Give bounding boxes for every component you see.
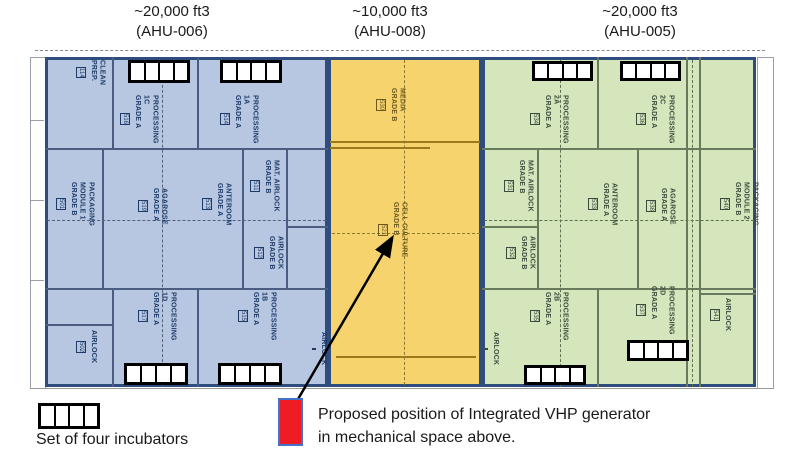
incubator-cell — [672, 343, 687, 358]
wall — [637, 148, 639, 288]
room-label: PACKAGING MODULE 1 GRADE B — [68, 182, 94, 226]
incubator-cell — [83, 406, 98, 426]
room-label: ANTEROOM GRADE A — [214, 183, 232, 225]
room-number: 531 — [504, 180, 514, 192]
room-number: 537 — [636, 304, 646, 316]
plan-left-margin — [30, 57, 46, 389]
incubator-cell — [234, 366, 249, 382]
room-label: AGAROSE GRADE A — [150, 188, 168, 225]
incubator-set-icon — [220, 60, 282, 83]
room-processing-2b: PROCESSING 2B GRADE A 535 — [530, 292, 568, 341]
room-number: 514 — [220, 113, 230, 125]
incubator-legend-label: Set of four incubators — [36, 428, 188, 451]
incubator-cell — [158, 63, 173, 80]
room-label: PROCESSING 2D GRADE A — [648, 286, 674, 335]
incubator-cell — [562, 64, 576, 78]
incubator-set-legend-icon — [38, 403, 100, 429]
room-number: 501 — [56, 198, 66, 210]
wall — [597, 288, 599, 387]
room-number: 502 — [76, 341, 86, 353]
plan-top-wall — [35, 50, 765, 51]
room-number: 530 — [376, 99, 386, 111]
wall — [686, 57, 688, 387]
ahu-unit: (AHU-005) — [555, 22, 725, 42]
room-media: MEDIA GRADE B 530 — [376, 88, 406, 122]
room-number: 511 — [250, 180, 260, 192]
wall — [330, 147, 430, 149]
wall — [242, 148, 244, 288]
wall — [482, 148, 756, 150]
incubator-cell — [68, 406, 83, 426]
wall — [537, 148, 539, 288]
room-number: 538 — [646, 200, 656, 212]
wall — [597, 57, 599, 148]
incubator-cell — [540, 368, 555, 382]
room-label: PROCESSING 1D GRADE A — [150, 292, 176, 341]
room-label: PROCESSING 1C GRADE A — [132, 95, 158, 144]
incubator-cell — [131, 63, 144, 80]
wall — [699, 57, 701, 387]
wall — [699, 293, 756, 295]
incubator-cell — [527, 368, 540, 382]
room-cell-culture: CELL CULTURE GRADE B 521 — [378, 202, 408, 257]
room-number: 517 — [138, 310, 148, 322]
vhp-legend-label: Proposed position of Integrated VHP gene… — [318, 403, 650, 449]
room-airlock-green-corridor: AIRLOCK — [484, 332, 499, 365]
incubator-cell — [41, 406, 54, 426]
room-mat-airlock-1: MAT. AIRLOCK GRADE B 511 — [250, 160, 280, 212]
incubator-cell — [236, 63, 251, 80]
incubator-cell — [265, 63, 280, 80]
wall — [112, 288, 114, 387]
ahu-unit: (AHU-008) — [305, 22, 475, 42]
room-number: 519 — [138, 200, 148, 212]
room-label: AIRLOCK — [722, 298, 731, 331]
room-anteroom-2: ANTEROOM GRADE A 533 — [588, 183, 618, 225]
wall — [286, 148, 288, 288]
room-number: 533 — [588, 198, 598, 210]
incubator-cell — [635, 64, 649, 78]
room-mat-airlock-2: MAT. AIRLOCK GRADE B 531 — [504, 160, 534, 212]
room-processing-1a: PROCESSING 1A GRADE A 514 — [220, 95, 258, 144]
room-label: PROCESSING 2B GRADE A — [542, 292, 568, 341]
incubator-cell — [576, 64, 590, 78]
incubator-cell — [250, 63, 265, 80]
wall — [286, 226, 328, 228]
room-label: AIRLOCK — [490, 332, 499, 365]
room-airlock-gradeb-1: AIRLOCK GRADE B 512 — [254, 236, 284, 270]
incubator-cell — [264, 366, 279, 382]
incubator-cell — [650, 64, 664, 78]
room-number — [484, 348, 488, 350]
ahu-volume: ~20,000 ft3 — [87, 2, 257, 22]
incubator-cell — [249, 366, 264, 382]
wall — [330, 141, 480, 143]
wall — [30, 280, 44, 281]
ahu-005-label: ~20,000 ft3 (AHU-005) — [555, 2, 725, 41]
room-agarose-2: AGAROSE GRADE A 538 — [646, 188, 676, 225]
room-airlock-541: AIRLOCK 541 — [710, 298, 731, 331]
wall — [102, 148, 104, 288]
room-processing-2a: PROCESSING 2A GRADE A 534 — [530, 95, 568, 144]
room-label: MAT. AIRLOCK GRADE B — [262, 160, 280, 212]
wall — [197, 57, 199, 148]
room-number: 534 — [530, 113, 540, 125]
room-number: 541 — [710, 309, 720, 321]
floor-plan-figure: ~20,000 ft3 (AHU-006) ~10,000 ft3 (AHU-0… — [0, 0, 800, 460]
incubator-set-icon — [532, 61, 593, 81]
room-airlock-502: AIRLOCK 502 — [76, 330, 97, 363]
room-label: MEDIA GRADE B — [388, 88, 406, 122]
room-label: PROCESSING 2A GRADE A — [542, 95, 568, 144]
room-processing-1d: PROCESSING 1D GRADE A 517 — [138, 292, 176, 341]
ahu-008-label: ~10,000 ft3 (AHU-008) — [305, 2, 475, 41]
room-label: AIRLOCK — [318, 332, 327, 365]
incubator-cell — [144, 63, 159, 80]
room-label: AIRLOCK GRADE B — [518, 236, 536, 270]
incubator-set-icon — [627, 340, 689, 361]
plan-right-margin — [757, 57, 774, 389]
wall — [482, 226, 537, 228]
incubator-cell — [643, 343, 658, 358]
room-label: AGAROSE GRADE A — [658, 188, 676, 225]
plan-bottom-wall — [30, 388, 772, 389]
room-label: CELL CULTURE GRADE B — [390, 202, 408, 257]
centerline — [484, 220, 754, 221]
incubator-cell — [657, 343, 672, 358]
room-number: 535 — [530, 310, 540, 322]
room-number: 513 — [202, 198, 212, 210]
wall — [45, 288, 328, 290]
incubator-set-icon — [218, 363, 282, 385]
room-label: PROCESSING 1B GRADE A — [250, 292, 276, 341]
room-number: 114 — [76, 67, 86, 79]
incubator-cell — [630, 343, 643, 358]
room-label: MAT. AIRLOCK GRADE B — [516, 160, 534, 212]
incubator-cell — [170, 366, 185, 382]
room-number: 536 — [636, 113, 646, 125]
ahu-006-label: ~20,000 ft3 (AHU-006) — [87, 2, 257, 41]
room-airlock-gradeb-2: AIRLOCK GRADE B 532 — [506, 236, 536, 270]
wall — [45, 324, 112, 326]
room-processing-2d: PROCESSING 2D GRADE A 537 — [636, 286, 674, 335]
room-anteroom-1: ANTEROOM GRADE A 513 — [202, 183, 232, 225]
incubator-cell — [223, 63, 236, 80]
incubator-cell — [54, 406, 69, 426]
incubator-set-icon — [128, 60, 190, 83]
incubator-set-icon — [620, 61, 681, 81]
room-number: 521 — [378, 224, 388, 236]
room-label: CLEAN PREP. — [88, 60, 106, 85]
room-label: PROCESSING 2C GRADE A — [648, 95, 674, 144]
zone-ahu-005 — [482, 57, 756, 387]
incubator-cell — [140, 366, 155, 382]
room-label: AIRLOCK GRADE B — [266, 236, 284, 270]
wall — [30, 200, 44, 201]
incubator-cell — [554, 368, 569, 382]
incubator-cell — [547, 64, 561, 78]
room-number — [312, 348, 316, 350]
incubator-cell — [535, 64, 547, 78]
room-processing-1c: PROCESSING 1C GRADE A 516 — [120, 95, 158, 144]
room-number: 515 — [238, 310, 248, 322]
incubator-set-icon — [524, 365, 586, 385]
ahu-volume: ~20,000 ft3 — [555, 2, 725, 22]
room-processing-2c: PROCESSING 2C GRADE A 536 — [636, 95, 674, 144]
room-clean-prep: CLEAN PREP. 114 — [76, 60, 106, 85]
room-label: PROCESSING 1A GRADE A — [232, 95, 258, 144]
room-number: 532 — [506, 247, 516, 259]
room-number: 512 — [254, 247, 264, 259]
wall — [197, 288, 199, 387]
room-processing-1b: PROCESSING 1B GRADE A 515 — [238, 292, 276, 341]
incubator-cell — [127, 366, 140, 382]
incubator-cell — [569, 368, 584, 382]
room-label: PACKAGING MODULE 2 GRADE B — [732, 182, 758, 226]
room-label: ANTEROOM GRADE A — [600, 183, 618, 225]
incubator-set-icon — [124, 363, 188, 385]
room-airlock-blue-corridor: AIRLOCK — [312, 332, 327, 365]
wall — [112, 57, 114, 148]
room-agarose-1: AGAROSE GRADE A 519 — [138, 188, 168, 225]
room-number: 516 — [120, 113, 130, 125]
ahu-volume: ~10,000 ft3 — [305, 2, 475, 22]
wall — [482, 288, 756, 290]
centerline — [692, 60, 693, 387]
ahu-unit: (AHU-006) — [87, 22, 257, 42]
incubator-cell — [173, 63, 188, 80]
wall — [336, 356, 476, 358]
room-packaging-module-1: PACKAGING MODULE 1 GRADE B 501 — [56, 182, 94, 226]
incubator-cell — [221, 366, 234, 382]
room-packaging-module-2: PACKAGING MODULE 2 GRADE B 540 — [720, 182, 758, 226]
incubator-cell — [155, 366, 170, 382]
wall — [30, 120, 44, 121]
incubator-cell — [664, 64, 678, 78]
vhp-marker-icon — [278, 398, 303, 446]
incubator-cell — [623, 64, 635, 78]
room-number: 540 — [720, 198, 730, 210]
room-label: AIRLOCK — [88, 330, 97, 363]
